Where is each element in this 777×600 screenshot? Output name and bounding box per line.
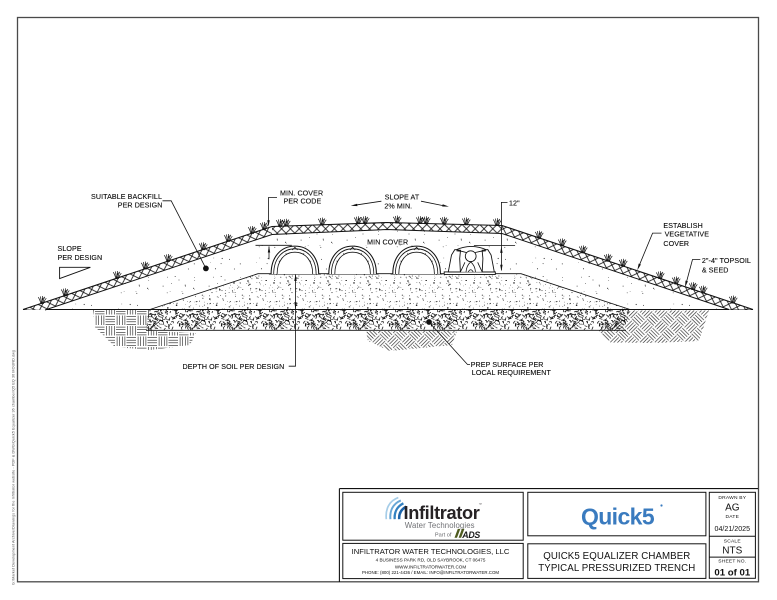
- svg-text:™: ™: [479, 503, 482, 507]
- svg-text:AG: AG: [725, 502, 740, 513]
- svg-text:PHONE: (800) 221-4436 / EMAIL:: PHONE: (800) 221-4436 / EMAIL: INFO@INFI…: [362, 570, 499, 575]
- svg-text:SHEET NO.: SHEET NO.: [718, 558, 746, 564]
- svg-text:PER DESIGN: PER DESIGN: [118, 202, 163, 210]
- svg-text:PREP SURFACE PER: PREP SURFACE PER: [471, 361, 544, 369]
- svg-text:Part of: Part of: [435, 532, 452, 538]
- svg-text:COVER: COVER: [663, 240, 689, 248]
- svg-text:VEGETATIVE: VEGETATIVE: [665, 231, 710, 239]
- svg-text:PER DESIGN: PER DESIGN: [58, 254, 103, 262]
- svg-text:NTS: NTS: [722, 546, 742, 557]
- svg-text:G:\Market Development Archive\: G:\Market Development Archive\Drawings f…: [12, 350, 16, 585]
- svg-text:PER CODE: PER CODE: [284, 198, 322, 206]
- svg-text:& SEED: & SEED: [702, 267, 729, 275]
- svg-text:DRAWN BY: DRAWN BY: [718, 495, 746, 501]
- svg-text:LOCAL REQUIREMENT: LOCAL REQUIREMENT: [472, 369, 552, 377]
- svg-text:ADS: ADS: [461, 530, 480, 540]
- svg-text:SLOPE: SLOPE: [58, 245, 82, 253]
- svg-text:MIN COVER: MIN COVER: [367, 238, 408, 246]
- svg-text:QUICK5 EQUALIZER CHAMBER: QUICK5 EQUALIZER CHAMBER: [543, 551, 690, 562]
- svg-text:TYPICAL PRESSURIZED TRENCH: TYPICAL PRESSURIZED TRENCH: [538, 563, 695, 574]
- svg-text:2"-4" TOPSOIL: 2"-4" TOPSOIL: [702, 257, 751, 265]
- svg-text:INFILTRATOR WATER TECHNOLOGIES: INFILTRATOR WATER TECHNOLOGIES, LLC: [352, 547, 510, 556]
- svg-text:DATE: DATE: [726, 514, 740, 520]
- svg-text:12": 12": [509, 199, 520, 207]
- svg-text:01 of 01: 01 of 01: [714, 567, 750, 578]
- svg-text:DEPTH OF SOIL PER DESIGN: DEPTH OF SOIL PER DESIGN: [183, 363, 285, 371]
- svg-text:2% MIN.: 2% MIN.: [384, 202, 412, 210]
- svg-text:SCALE: SCALE: [724, 539, 742, 545]
- svg-text:ESTABLISH: ESTABLISH: [663, 222, 702, 230]
- svg-text:Water Technologies: Water Technologies: [405, 521, 475, 530]
- svg-text:SUITABLE BACKFILL: SUITABLE BACKFILL: [91, 193, 162, 201]
- svg-text:SLOPE AT: SLOPE AT: [385, 193, 420, 201]
- svg-text:04/21/2025: 04/21/2025: [715, 525, 751, 533]
- svg-text:Quick5: Quick5: [581, 504, 655, 530]
- svg-text:4 BUSINESS PARK RD, OLD SAYBRO: 4 BUSINESS PARK RD, OLD SAYBROOK, CT 064…: [376, 558, 486, 563]
- svg-text:MIN. COVER: MIN. COVER: [280, 189, 323, 197]
